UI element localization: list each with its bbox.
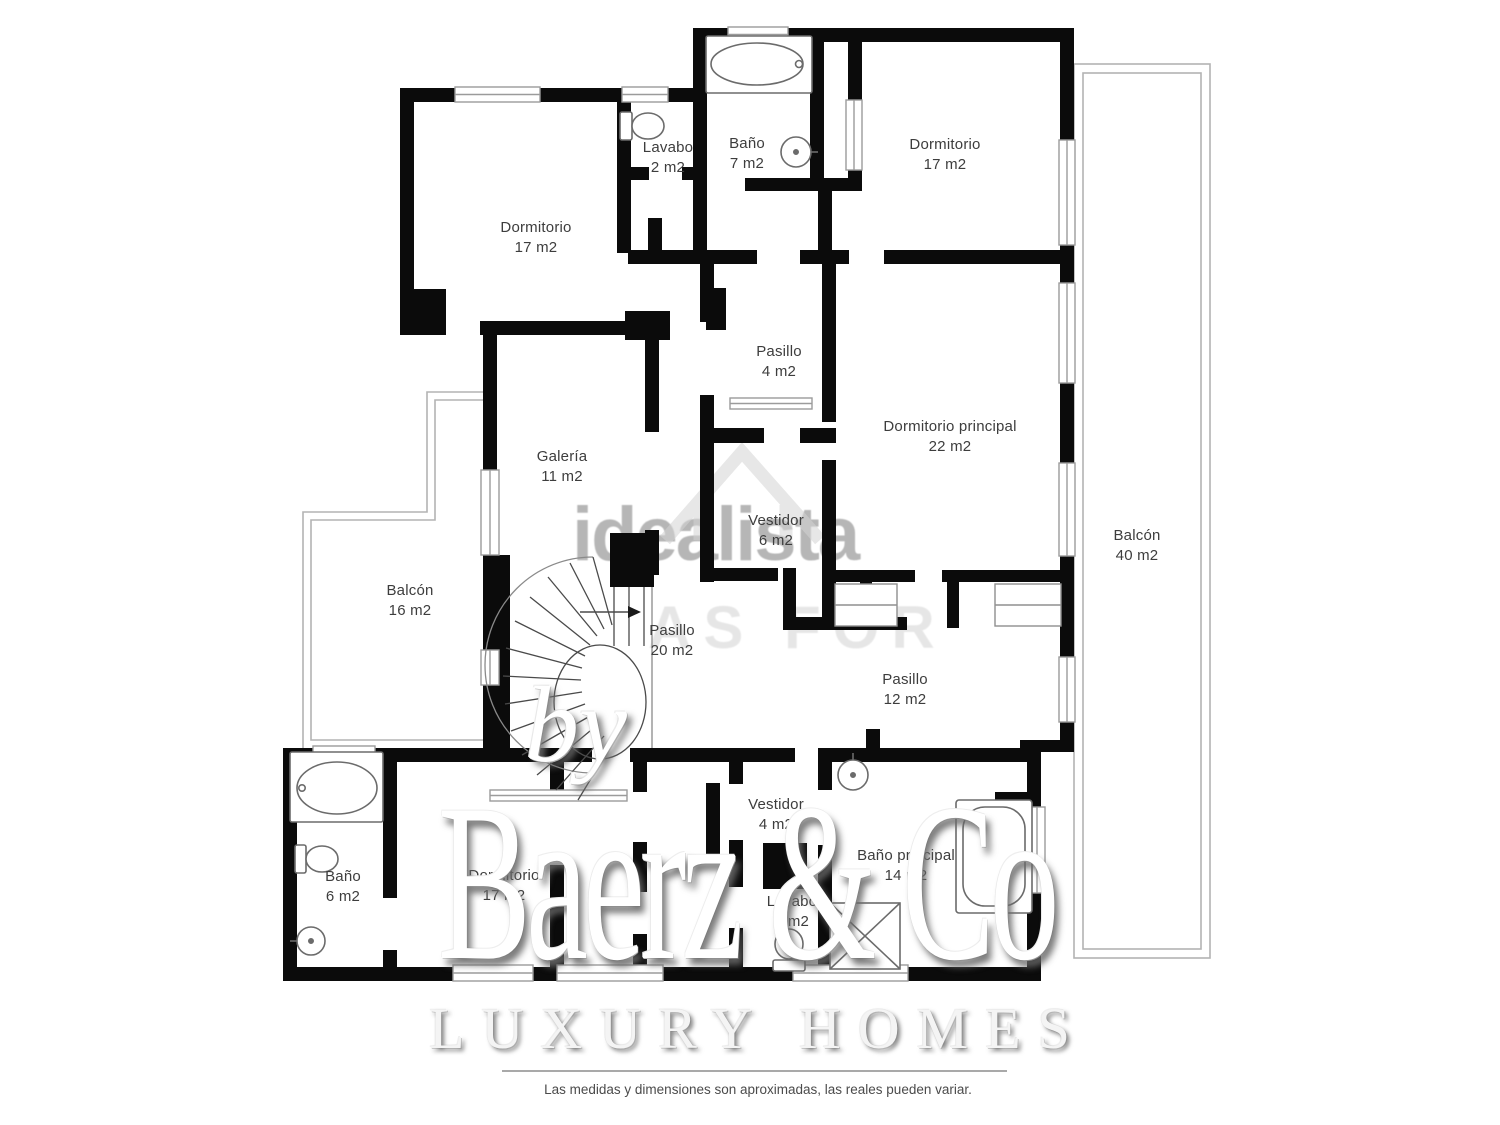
room-label-lavabo-top: Lavabo2 m2 <box>643 138 693 178</box>
room-label-galeria: Galería11 m2 <box>537 447 588 487</box>
room-label-pasillo-20: Pasillo20 m2 <box>649 621 695 661</box>
room-label-balcon-40: Balcón40 m2 <box>1113 526 1160 566</box>
room-label-balcon-16: Balcón16 m2 <box>386 581 433 621</box>
floor-plan-canvas: idealista AS FOR <box>0 0 1500 1125</box>
room-label-dormitorio-principal: Dormitorio principal22 m2 <box>883 417 1016 457</box>
room-label-dormitorio-bottom: Dormitorio17 m2 <box>468 866 539 906</box>
room-label-bano-top: Baño7 m2 <box>729 134 765 174</box>
room-label-dormitorio-top-left: Dormitorio17 m2 <box>500 218 571 258</box>
room-label-pasillo-4: Pasillo4 m2 <box>756 342 802 382</box>
room-label-lavabo-bottom: Lavabo2 m2 <box>767 892 817 932</box>
room-label-bano-principal: Baño principal14 m2 <box>857 846 955 886</box>
room-label-bano-6: Baño6 m2 <box>325 867 361 907</box>
room-label-dormitorio-top-right: Dormitorio17 m2 <box>909 135 980 175</box>
room-label-vestidor-4: Vestidor4 m2 <box>748 795 804 835</box>
room-label-vestidor-6: Vestidor6 m2 <box>748 511 804 551</box>
room-label-pasillo-12: Pasillo12 m2 <box>882 670 928 710</box>
